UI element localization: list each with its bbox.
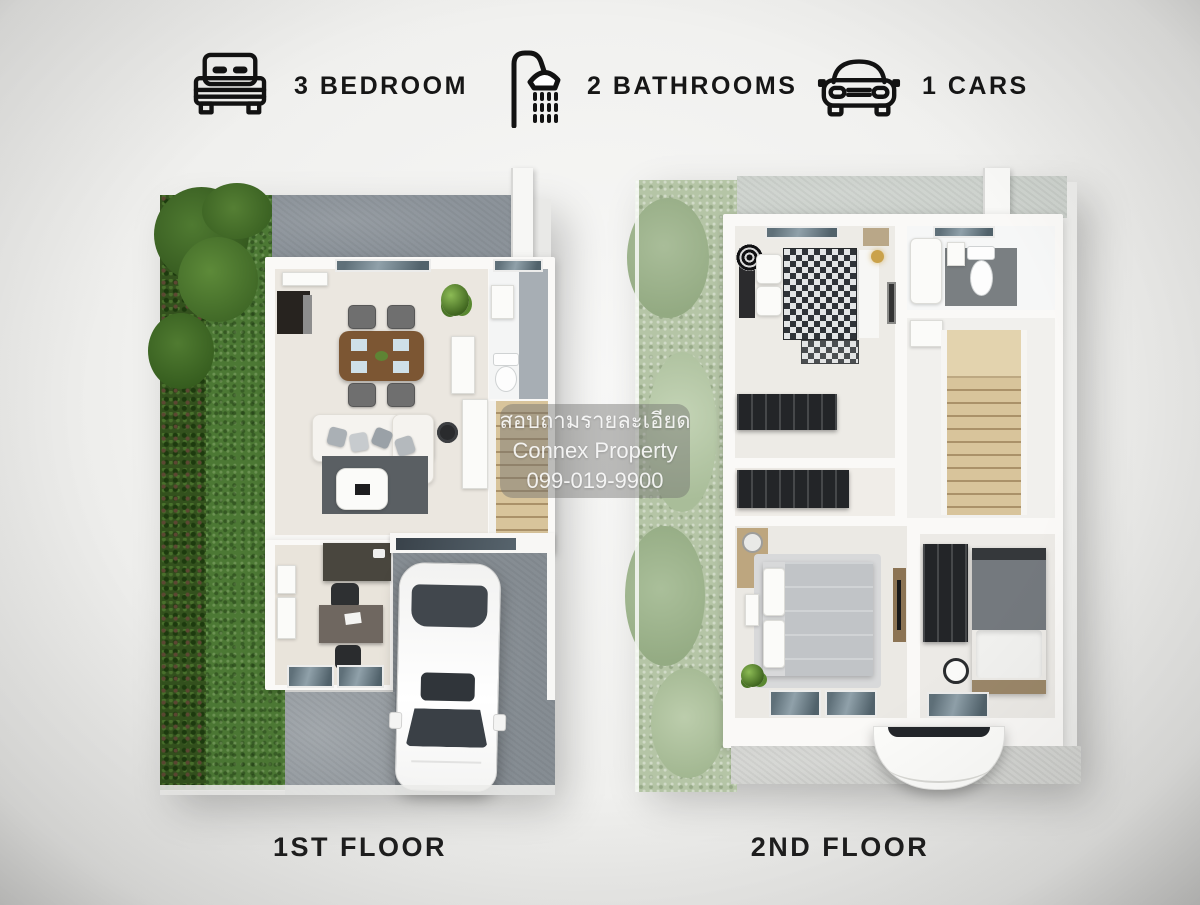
dining-chair [348,305,376,329]
carport-side-wall [547,553,555,700]
bed-icon [188,51,272,121]
car-mirror [389,712,402,729]
open-clothes-rack [737,470,849,508]
sofa-pillow [349,432,370,453]
tree-canopy [202,183,272,239]
bedroom3-window [927,692,989,718]
watermark-line-phone: 099-019-9900 [526,467,663,495]
first-floor-plan [160,195,555,795]
feature-bedrooms-label: 3 BEDROOM [294,72,468,101]
bed3-duvet [972,560,1046,630]
car-sunroof [421,672,476,701]
second-floor-plan [635,170,1110,794]
placemat [393,361,409,373]
bathroom2-sink [947,242,965,266]
feature-bathrooms-label: 2 BATHROOMS [587,72,797,101]
feature-cars-label: 1 CARS [922,72,1029,101]
watermark-line-brand: Connex Property [512,437,677,465]
kitchen-counter [323,543,391,581]
storage-closet [462,399,488,489]
bed2-pillow [756,286,782,316]
side-table [437,422,458,443]
placemat [393,339,409,351]
potted-plant [741,664,764,687]
wall-picture [887,282,896,324]
tree-canopy [148,313,214,389]
watermark: สอบถามรายละเอียด Connex Property 099-019… [500,404,690,498]
tree-canopy [651,668,725,778]
toilet-tank [967,246,995,260]
driveway-bottom [285,692,395,795]
dining-chair [387,305,415,329]
stair-railing [1021,330,1027,515]
bed3-headboard [972,548,1046,560]
bed2-pillow [756,254,782,284]
car-icon [816,53,902,119]
living-room-window [335,259,431,272]
dining-chair [348,383,376,407]
stair-landing [947,330,1021,378]
carport-window-strip [396,538,516,550]
table-centerpiece [375,351,388,361]
stair-railing [941,330,947,515]
shower-tray [910,238,942,304]
bedside-bench [745,594,759,626]
table-lamp [871,250,884,263]
feature-bathrooms: 2 BATHROOMS [499,44,797,128]
bathroom-sink [491,285,514,319]
decor-shelf [451,336,475,394]
papers [344,612,361,625]
tree-canopy [178,237,258,322]
minibar-side [303,295,312,334]
toilet [970,260,993,296]
kitchen-window [337,665,384,688]
nightstand [863,228,889,246]
walkway-top [737,176,1067,218]
watermark-line-thai: สอบถามรายละเอียด [499,407,690,435]
desk [319,605,383,643]
open-wardrobe [923,544,968,642]
tree-canopy [627,198,709,318]
staircase [947,378,1021,515]
second-floor-label: 2ND FLOOR [710,832,970,863]
placemat [351,361,367,373]
wall-stub [511,168,533,260]
bathroom-window [493,259,543,272]
master-pillow [763,620,785,668]
feature-cars: 1 CARS [816,50,1029,122]
page: 3 BEDROOM 2 BATHROOMS 1 CARS [0,0,1200,905]
bed2-mattress-edge [857,250,879,338]
car-mirror [493,714,506,731]
round-stool [943,658,969,684]
hall-closet [910,320,943,347]
bed2-duvet [783,248,857,340]
bedroom3-bed [972,548,1046,694]
bedroom2-window [765,226,839,239]
shower-icon [499,44,569,128]
bathroom2-window [933,226,995,238]
master-duvet [785,562,873,676]
air-conditioner [282,272,328,286]
kitchen-sink [373,549,385,558]
wardrobe [737,394,837,430]
vanity-mirror [742,532,763,553]
bed3-blanket [976,630,1042,678]
bed2-blanket-tail [801,340,859,364]
toilet-tank [493,353,519,366]
dining-chair [387,383,415,407]
master-window [769,690,821,717]
awning-curve-line [884,743,994,783]
kitchen-window [287,665,334,688]
tv-console [893,568,906,642]
potted-plant [441,284,469,316]
placemat [351,339,367,351]
bathroom-tile-wall [519,269,548,399]
driveway-top [272,195,515,259]
wall-stub [983,168,1010,218]
dining-table [339,331,424,381]
master-window [825,690,877,717]
awning-glass-edge [888,727,990,737]
book [355,484,370,495]
coffee-table [336,468,388,510]
car-windshield [406,708,489,748]
first-floor-label: 1ST FLOOR [230,832,490,863]
stair-railing [489,401,496,546]
car [395,562,502,792]
plot-edge [160,785,555,795]
refrigerator [277,597,296,639]
master-bed [763,562,873,676]
feature-bedrooms: 3 BEDROOM [188,50,468,122]
washing-machine [277,565,296,594]
car-rear-window [411,584,488,628]
tv [897,580,901,630]
toilet [495,366,517,392]
master-pillow [763,568,785,616]
